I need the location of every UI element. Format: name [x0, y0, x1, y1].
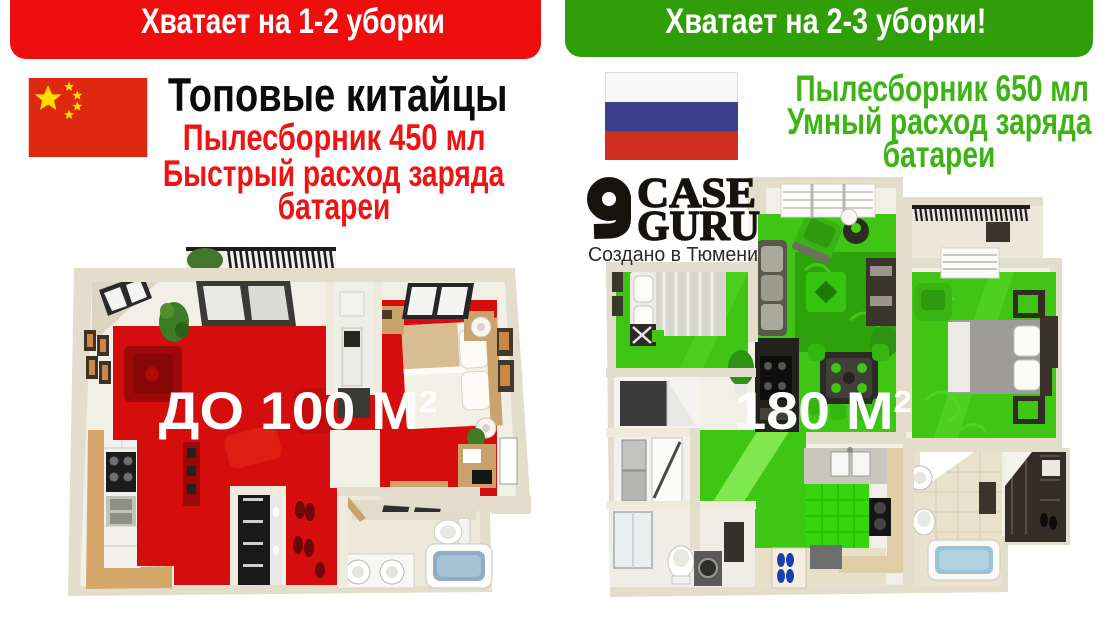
svg-text:Создано в Тюмени: Создано в Тюмени [588, 244, 758, 266]
